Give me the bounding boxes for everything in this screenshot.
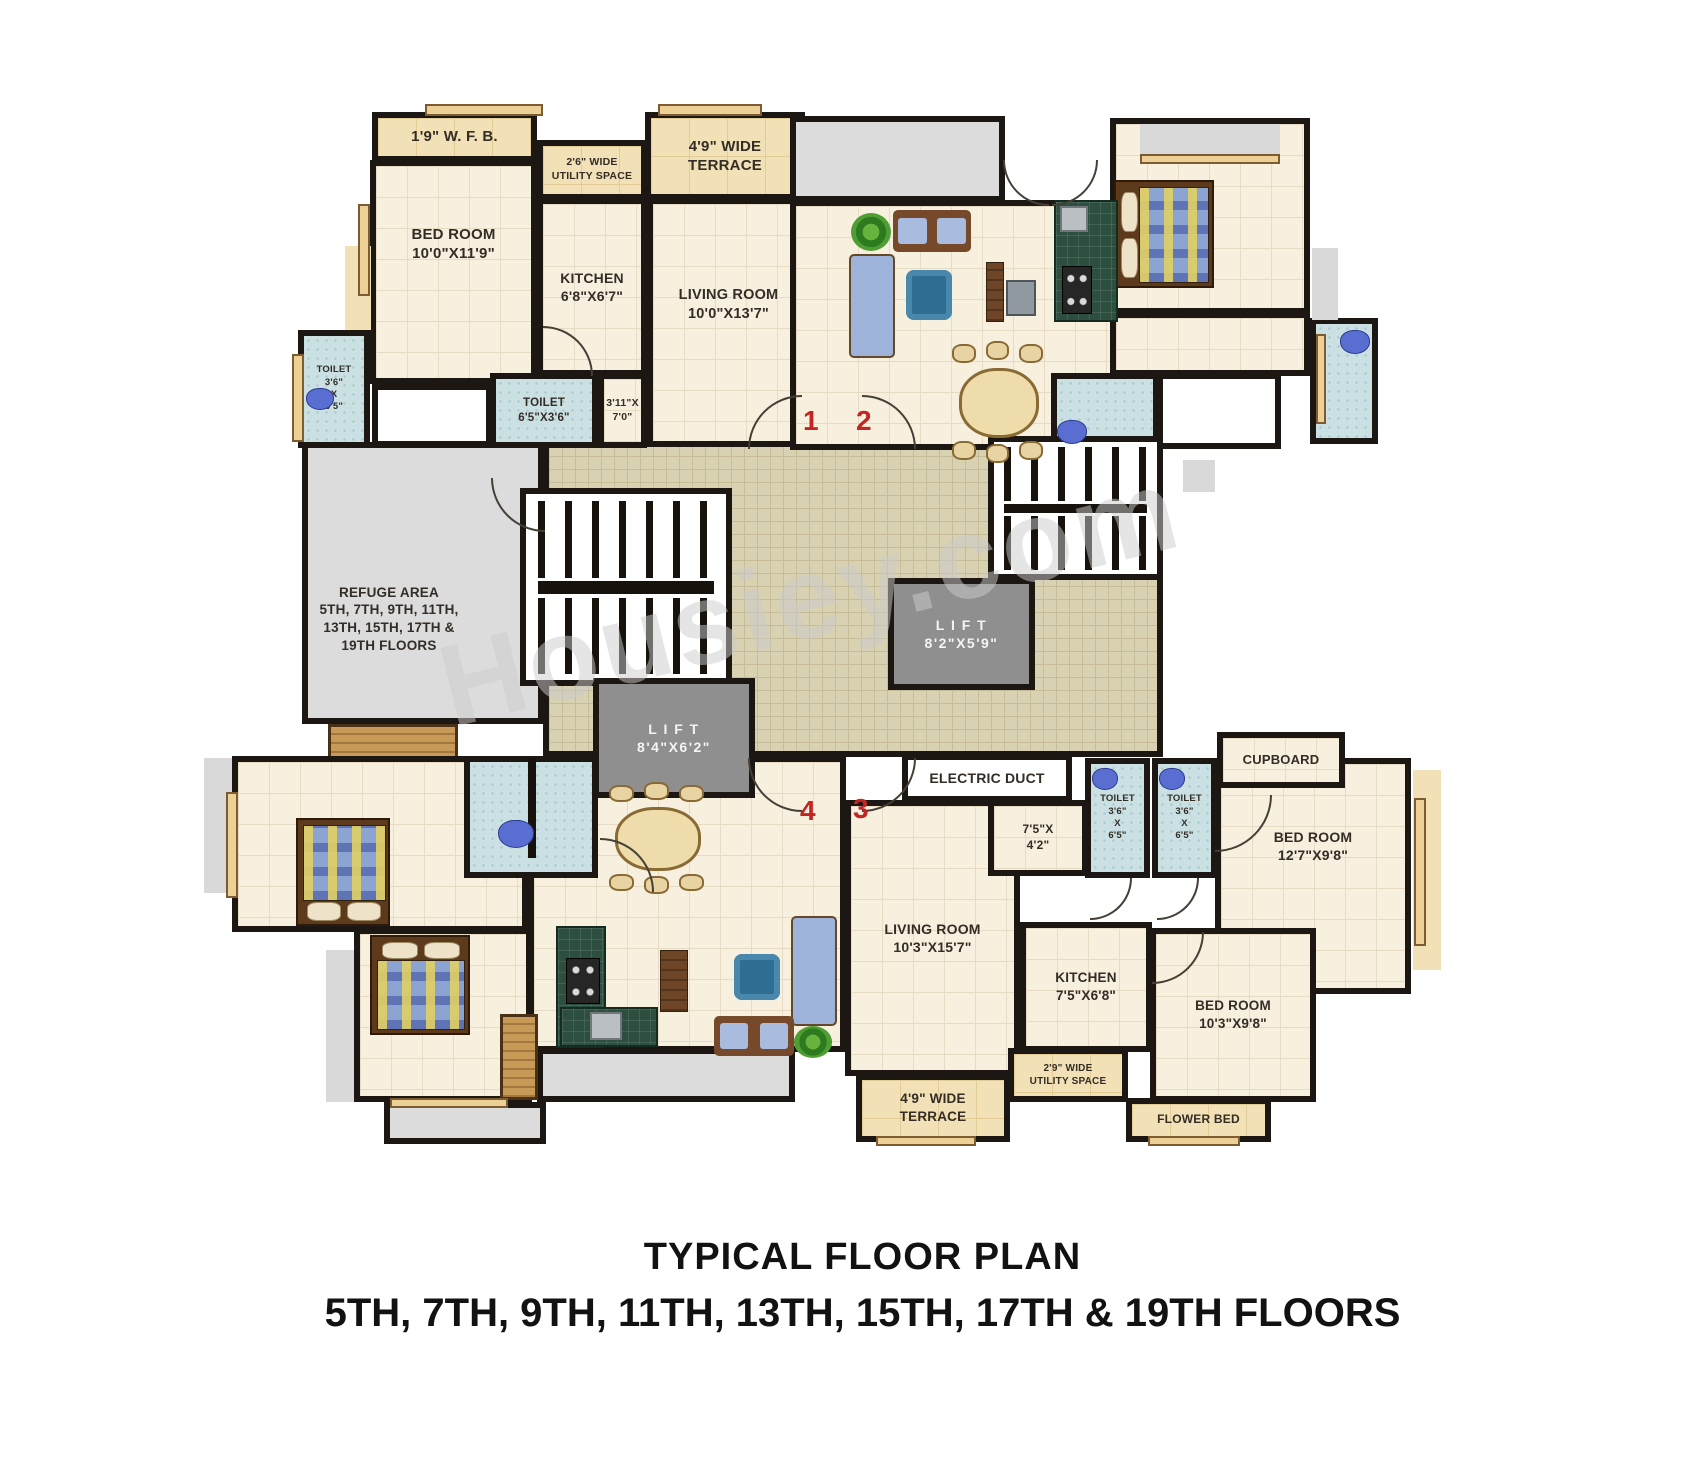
passage-4 bbox=[537, 1048, 795, 1102]
entry-3: 7'5"X4'2" bbox=[988, 800, 1088, 876]
rug bbox=[734, 954, 780, 1000]
plant bbox=[851, 213, 891, 251]
terrace-top-1-label: 4'9" WIDETERRACE bbox=[651, 118, 799, 194]
toilet-1a: TOILET3'6"X6'5" bbox=[298, 330, 370, 448]
stair-rail bbox=[1004, 504, 1147, 513]
dining-chair bbox=[986, 444, 1010, 463]
toilet-1b-label: TOILET6'5"X3'6" bbox=[496, 379, 592, 442]
cabinet bbox=[986, 262, 1004, 322]
dining-chair bbox=[644, 782, 669, 800]
kitchen-3-label: KITCHEN7'5"X6'8" bbox=[1026, 928, 1146, 1046]
window bbox=[226, 792, 238, 898]
plan-title-line2: 5TH, 7TH, 9TH, 11TH, 13TH, 15TH, 17TH & … bbox=[30, 1291, 1695, 1336]
electric-duct-label: ELECTRIC DUCT bbox=[908, 760, 1066, 796]
window bbox=[658, 104, 762, 116]
bed-pillow bbox=[307, 902, 341, 921]
stair-treads bbox=[538, 501, 714, 577]
lift-b-label: L I F T8'4"X6'2" bbox=[599, 684, 749, 792]
passage-1: 3'11"X7'0" bbox=[598, 373, 647, 448]
dining-chair bbox=[986, 341, 1010, 360]
ledge-4b bbox=[326, 950, 354, 1102]
passage-1-label: 3'11"X7'0" bbox=[604, 379, 641, 442]
window bbox=[292, 354, 304, 442]
window bbox=[358, 204, 370, 296]
entry-3-label: 7'5"X4'2" bbox=[994, 806, 1082, 870]
window bbox=[425, 104, 543, 116]
dining-chair bbox=[679, 874, 704, 892]
toilet-wc bbox=[1092, 768, 1118, 790]
toilet-wc bbox=[306, 388, 334, 410]
tv bbox=[1006, 280, 1036, 316]
dining-chair bbox=[609, 785, 634, 803]
terrace-3-label: 4'9" WIDETERRACE bbox=[862, 1080, 1004, 1136]
terrace-4 bbox=[384, 1102, 546, 1144]
dining-chair bbox=[952, 441, 976, 460]
store-2 bbox=[1157, 373, 1281, 449]
dining-chair bbox=[1019, 441, 1043, 460]
door-arc bbox=[1090, 878, 1132, 920]
plan-title: TYPICAL FLOOR PLAN 5TH, 7TH, 9TH, 11TH, … bbox=[30, 1236, 1695, 1336]
living-1-label: LIVING ROOM10'0"X13'7" bbox=[653, 186, 804, 423]
unit-number-4: 4 bbox=[800, 795, 816, 827]
bed-pillow bbox=[1121, 192, 1138, 231]
floor-plan-page: 1'9" W. F. B.4'9" WIDETERRACE2'6" WIDEUT… bbox=[0, 0, 1695, 1473]
window bbox=[876, 1136, 976, 1146]
lift-a-label: L I F T8'2"X5'9" bbox=[894, 584, 1029, 684]
hall-1 bbox=[372, 384, 492, 447]
stove bbox=[566, 958, 600, 1004]
utility-top-1-label: 2'6" WIDEUTILITY SPACE bbox=[543, 146, 641, 194]
utility-top-1: 2'6" WIDEUTILITY SPACE bbox=[537, 140, 647, 200]
bed-blanket bbox=[303, 825, 386, 901]
ledge-2b bbox=[1312, 248, 1338, 320]
window bbox=[390, 1098, 508, 1108]
cupboard-3: CUPBOARD bbox=[1217, 732, 1345, 788]
dining-table bbox=[944, 356, 1048, 444]
ledge-2c bbox=[1183, 460, 1215, 492]
refuge-area-label: REFUGE AREA5TH, 7TH, 9TH, 11TH,13TH, 15T… bbox=[274, 484, 504, 754]
toilet-wc bbox=[1159, 768, 1185, 790]
bed-pillow bbox=[1121, 238, 1138, 277]
plant bbox=[794, 1026, 832, 1058]
bed-pillow bbox=[424, 942, 461, 959]
sofa bbox=[849, 254, 895, 358]
bed bbox=[296, 818, 390, 926]
bedroom-1: BED ROOM10'0"X11'9" bbox=[370, 160, 537, 384]
toilet-wc bbox=[1057, 420, 1087, 444]
terrace-2 bbox=[790, 116, 1005, 202]
hall-2 bbox=[1110, 312, 1310, 376]
stair-treads bbox=[538, 598, 714, 674]
bedroom-1-label: BED ROOM10'0"X11'9" bbox=[376, 138, 531, 350]
lift-a: L I F T8'2"X5'9" bbox=[888, 578, 1035, 690]
rug bbox=[906, 270, 952, 320]
door-arc bbox=[1157, 878, 1199, 920]
unit-number-2: 2 bbox=[856, 405, 872, 437]
cupboard-3-label: CUPBOARD bbox=[1223, 738, 1339, 782]
dining-chair bbox=[952, 344, 976, 363]
stove bbox=[1062, 266, 1092, 314]
bed bbox=[1114, 180, 1214, 288]
window bbox=[1140, 154, 1280, 164]
window bbox=[1414, 798, 1426, 946]
toilet-1b: TOILET6'5"X3'6" bbox=[490, 373, 598, 448]
dining-chair bbox=[1019, 344, 1043, 363]
ledge-2a bbox=[1140, 124, 1280, 156]
window bbox=[1316, 334, 1326, 424]
window bbox=[1148, 1136, 1240, 1146]
flower-bed-3-label: FLOWER BED bbox=[1132, 1104, 1265, 1136]
bed-blanket bbox=[1139, 187, 1209, 283]
dining-table-top bbox=[959, 368, 1040, 437]
toilet-wc bbox=[1340, 330, 1370, 354]
corner-sofa bbox=[893, 210, 971, 252]
electric-duct: ELECTRIC DUCT bbox=[902, 754, 1072, 802]
stair-treads bbox=[1004, 516, 1147, 570]
cabinet bbox=[660, 950, 688, 1012]
toilet-wc bbox=[498, 820, 534, 848]
cabinet-4 bbox=[500, 1014, 538, 1100]
utility-3: 2'9" WIDEUTILITY SPACE bbox=[1008, 1048, 1128, 1102]
lift-b: L I F T8'4"X6'2" bbox=[593, 678, 755, 798]
terrace-3: 4'9" WIDETERRACE bbox=[856, 1074, 1010, 1142]
staircase-main bbox=[520, 488, 732, 686]
unit-number-1: 1 bbox=[803, 405, 819, 437]
utility-3-label: 2'9" WIDEUTILITY SPACE bbox=[1014, 1054, 1122, 1096]
staircase-right bbox=[988, 436, 1163, 580]
stair-rail bbox=[538, 581, 714, 594]
sofa bbox=[791, 916, 837, 1026]
plan-title-line1: TYPICAL FLOOR PLAN bbox=[30, 1236, 1695, 1279]
dining-chair bbox=[679, 785, 704, 803]
sink bbox=[590, 1012, 622, 1040]
bed-pillow bbox=[382, 942, 419, 959]
unit-number-3: 3 bbox=[853, 793, 869, 825]
bed-pillow bbox=[347, 902, 381, 921]
bed-blanket bbox=[377, 960, 465, 1030]
corner-sofa bbox=[714, 1016, 794, 1056]
kitchen-3: KITCHEN7'5"X6'8" bbox=[1020, 922, 1152, 1052]
sink bbox=[1060, 206, 1088, 232]
bed bbox=[370, 935, 470, 1035]
